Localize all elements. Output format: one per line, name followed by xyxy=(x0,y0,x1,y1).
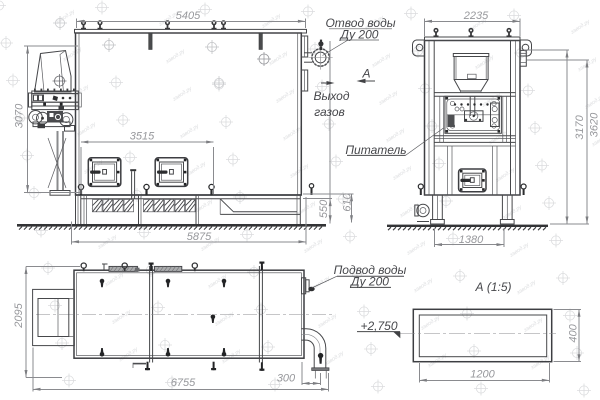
svg-text:А: А xyxy=(361,67,370,81)
svg-text:Выход: Выход xyxy=(313,89,349,103)
svg-text:1200: 1200 xyxy=(470,369,495,381)
svg-text:3170: 3170 xyxy=(574,114,586,139)
svg-text:1380: 1380 xyxy=(459,234,484,246)
svg-text:610: 610 xyxy=(341,192,353,211)
svg-text:+2,750: +2,750 xyxy=(360,319,397,333)
svg-text:5875: 5875 xyxy=(187,231,212,243)
svg-text:550: 550 xyxy=(318,199,330,218)
svg-text:2235: 2235 xyxy=(463,10,489,22)
svg-text:Питатель: Питатель xyxy=(345,143,406,157)
svg-text:А (1:5): А (1:5) xyxy=(474,280,511,294)
svg-text:5405: 5405 xyxy=(176,10,201,22)
svg-text:Ду 200: Ду 200 xyxy=(349,275,389,289)
svg-text:Ду 200: Ду 200 xyxy=(339,27,379,41)
svg-text:6755: 6755 xyxy=(171,377,196,389)
svg-text:газов: газов xyxy=(314,105,345,119)
svg-text:2095: 2095 xyxy=(13,302,25,328)
svg-text:3070: 3070 xyxy=(13,103,25,128)
svg-text:3620: 3620 xyxy=(588,112,600,137)
svg-text:300: 300 xyxy=(277,372,296,384)
svg-text:3515: 3515 xyxy=(130,131,155,143)
svg-text:400: 400 xyxy=(567,323,579,342)
